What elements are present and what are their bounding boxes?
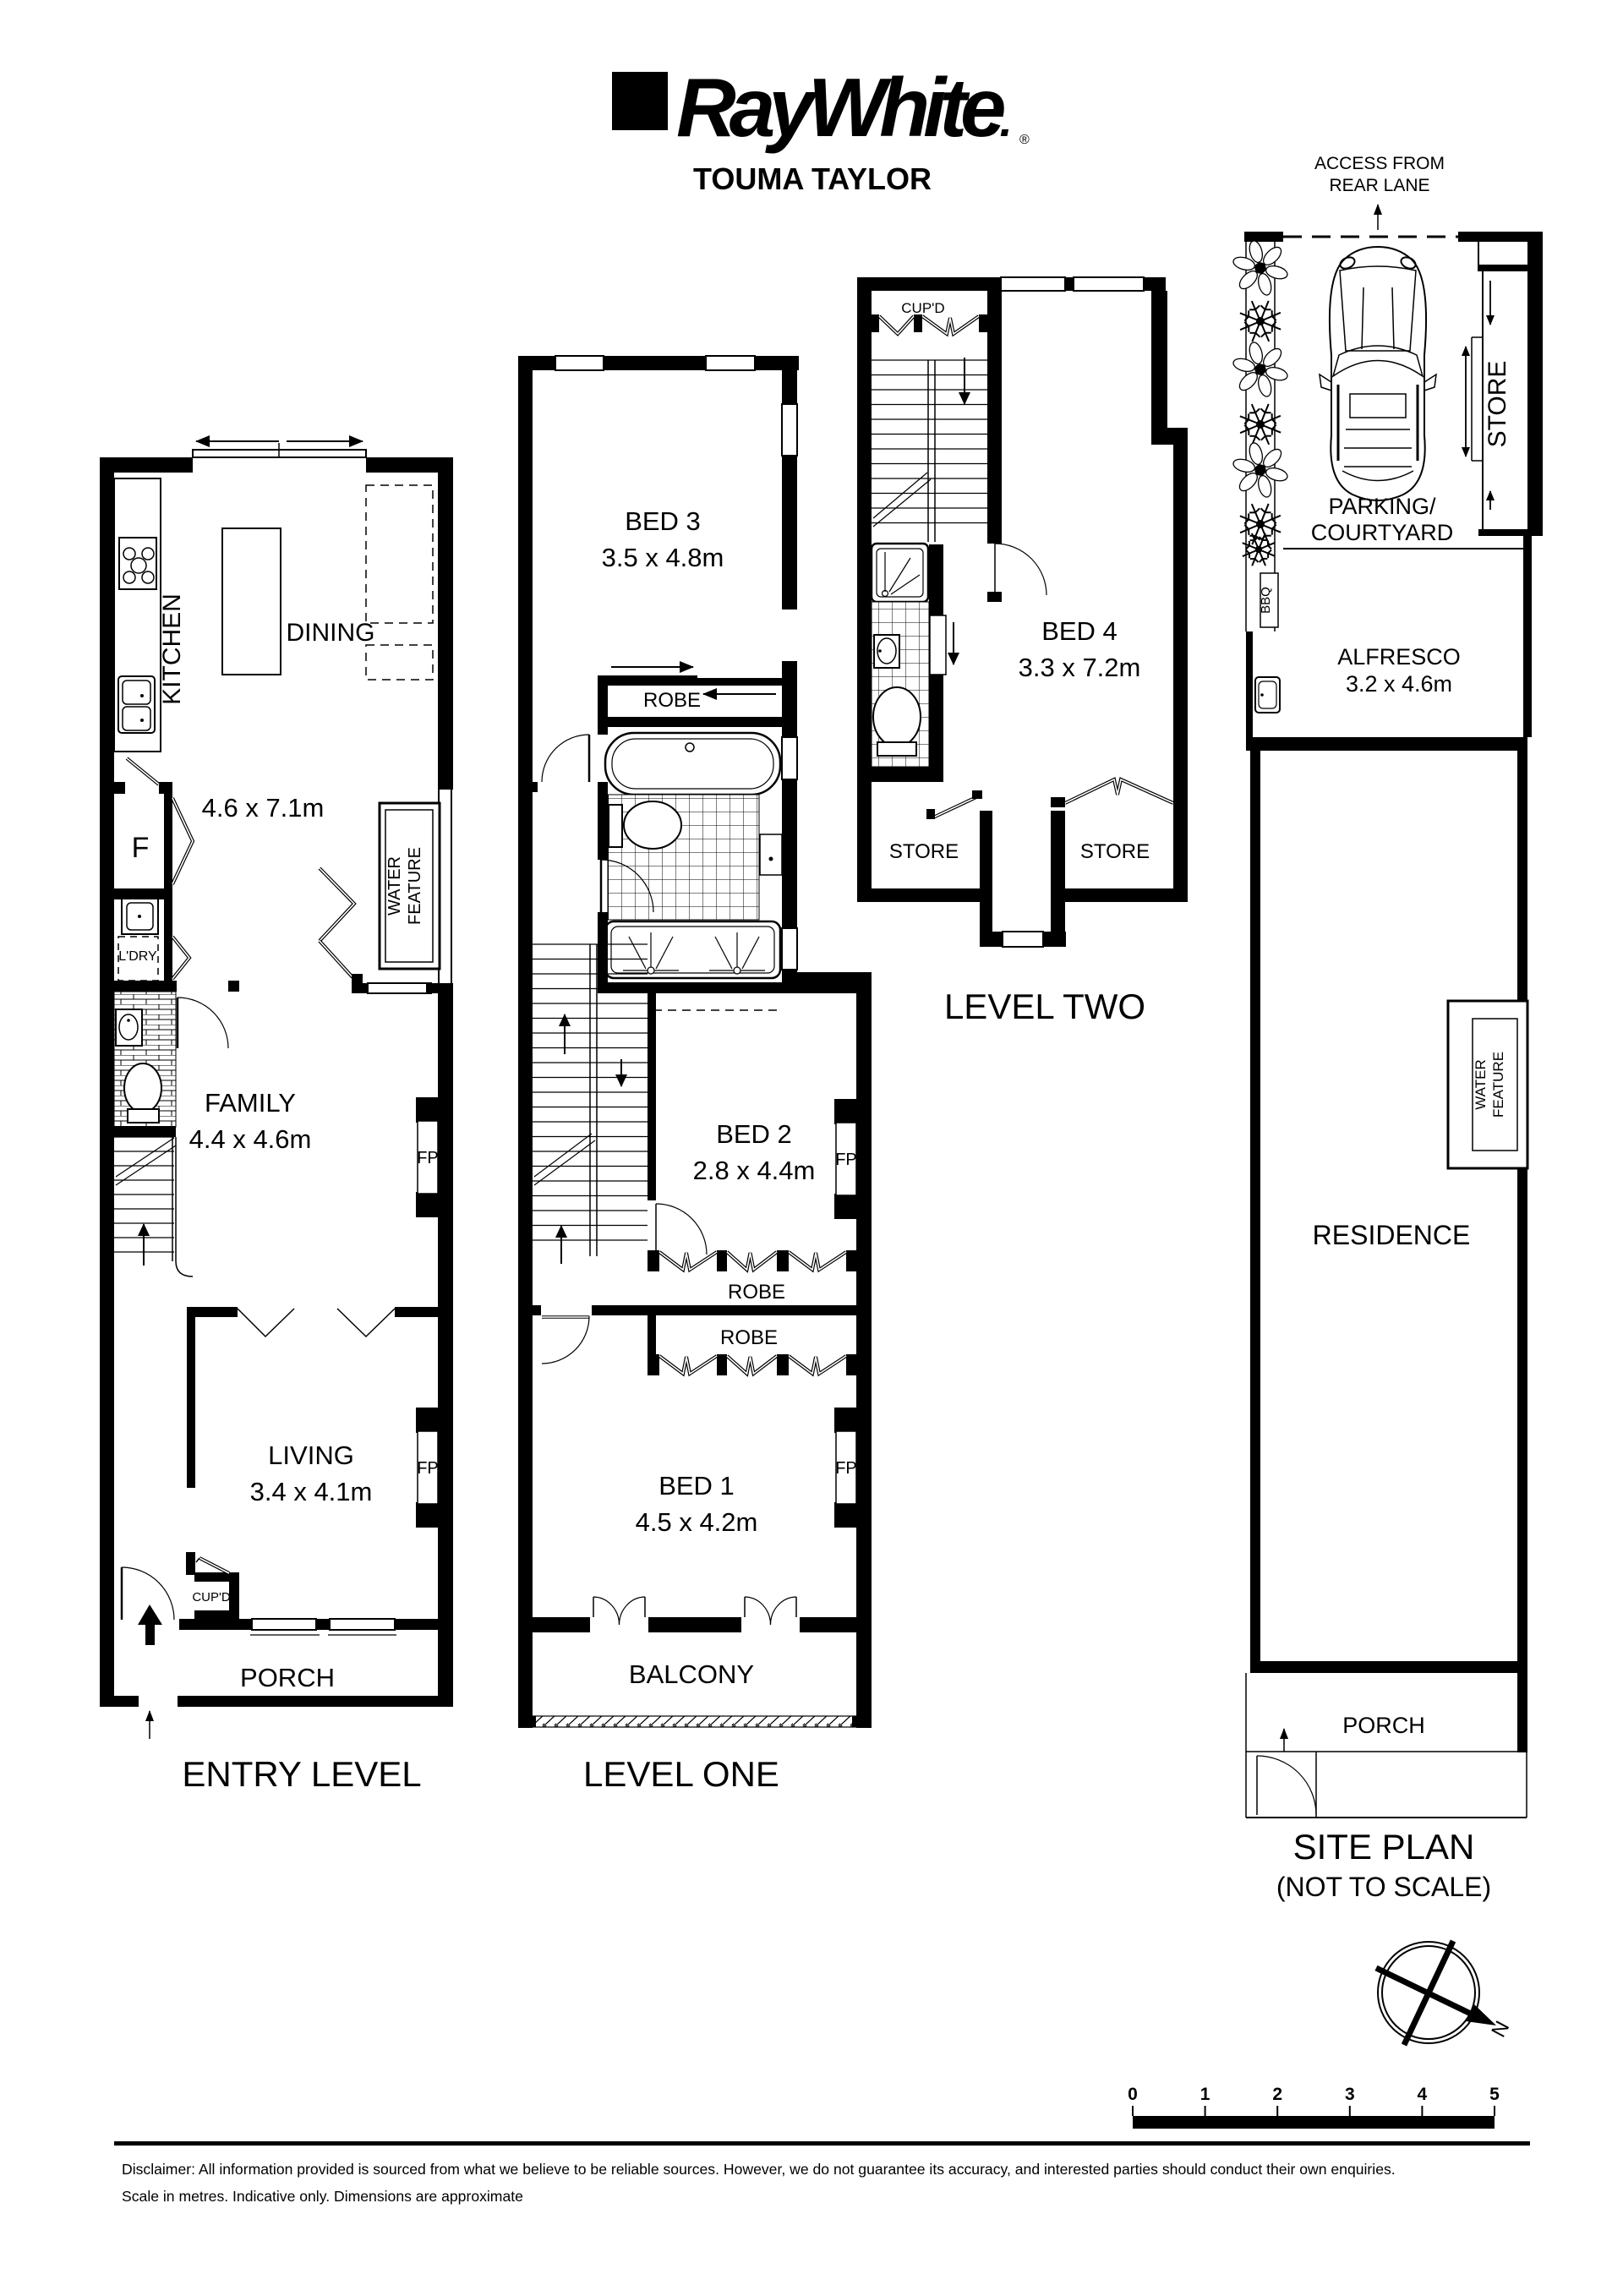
svg-text:RESIDENCE: RESIDENCE xyxy=(1313,1220,1471,1250)
svg-text:STORE: STORE xyxy=(889,840,959,863)
svg-text:FP: FP xyxy=(417,1459,439,1478)
svg-text:(NOT TO SCALE): (NOT TO SCALE) xyxy=(1276,1872,1491,1902)
svg-text:REAR LANE: REAR LANE xyxy=(1329,176,1429,195)
svg-text:FEATURE: FEATURE xyxy=(1490,1052,1506,1118)
svg-text:LEVEL TWO: LEVEL TWO xyxy=(944,987,1145,1026)
svg-text:2.8 x 4.4m: 2.8 x 4.4m xyxy=(693,1156,816,1185)
svg-text:FEATURE: FEATURE xyxy=(406,847,424,925)
svg-text:PARKING/: PARKING/ xyxy=(1328,494,1436,519)
svg-text:Scale in metres. Indicative on: Scale in metres. Indicative only. Dimens… xyxy=(122,2188,523,2205)
svg-text:BED 2: BED 2 xyxy=(716,1119,792,1149)
svg-text:3.5 x 4.8m: 3.5 x 4.8m xyxy=(602,543,724,572)
svg-text:PORCH: PORCH xyxy=(1342,1713,1425,1738)
svg-text:ALFRESCO: ALFRESCO xyxy=(1337,644,1461,670)
svg-text:LEVEL ONE: LEVEL ONE xyxy=(583,1754,779,1794)
svg-text:ACCESS FROM: ACCESS FROM xyxy=(1314,154,1445,173)
svg-text:4: 4 xyxy=(1418,2085,1428,2104)
svg-text:KITCHEN: KITCHEN xyxy=(158,593,186,705)
svg-text:0: 0 xyxy=(1128,2085,1138,2104)
svg-text:BBQ: BBQ xyxy=(1259,587,1273,614)
svg-text:3.4 x 4.1m: 3.4 x 4.1m xyxy=(250,1477,373,1506)
svg-text:ROBE: ROBE xyxy=(643,689,701,712)
svg-text:5: 5 xyxy=(1489,2085,1500,2104)
svg-text:CUP'D: CUP'D xyxy=(192,1590,231,1604)
svg-text:BED 4: BED 4 xyxy=(1041,616,1118,646)
svg-text:2: 2 xyxy=(1272,2085,1282,2104)
svg-text:ROBE: ROBE xyxy=(728,1281,785,1304)
svg-text:STORE: STORE xyxy=(1484,361,1511,448)
svg-text:TOUMA TAYLOR: TOUMA TAYLOR xyxy=(693,161,932,196)
svg-text:FAMILY: FAMILY xyxy=(205,1088,296,1118)
svg-text:1: 1 xyxy=(1200,2085,1210,2104)
svg-text:WATER: WATER xyxy=(385,856,404,916)
svg-text:WATER: WATER xyxy=(1473,1059,1489,1110)
svg-text:RayWhite.: RayWhite. xyxy=(676,61,1009,154)
svg-text:3: 3 xyxy=(1345,2085,1355,2104)
svg-text:COURTYARD: COURTYARD xyxy=(1311,520,1454,545)
svg-text:L'DRY: L'DRY xyxy=(118,949,157,964)
svg-text:BED 1: BED 1 xyxy=(658,1471,735,1501)
svg-text:FP: FP xyxy=(835,1459,857,1478)
svg-text:SITE PLAN: SITE PLAN xyxy=(1293,1827,1475,1867)
svg-text:ENTRY LEVEL: ENTRY LEVEL xyxy=(182,1754,421,1794)
svg-text:LIVING: LIVING xyxy=(268,1440,354,1470)
svg-text:BALCONY: BALCONY xyxy=(629,1659,754,1689)
svg-text:PORCH: PORCH xyxy=(240,1663,335,1692)
svg-text:4.4 x 4.6m: 4.4 x 4.6m xyxy=(189,1124,312,1154)
svg-text:®: ® xyxy=(1019,133,1030,147)
svg-text:Disclaimer: All information pr: Disclaimer: All information provided is … xyxy=(122,2161,1396,2178)
svg-text:ROBE: ROBE xyxy=(720,1326,778,1349)
svg-text:FP: FP xyxy=(417,1149,439,1167)
svg-text:3.3 x 7.2m: 3.3 x 7.2m xyxy=(1019,653,1141,682)
svg-text:DINING: DINING xyxy=(287,619,375,647)
svg-text:FP: FP xyxy=(835,1151,857,1169)
svg-text:3.2 x 4.6m: 3.2 x 4.6m xyxy=(1346,671,1452,697)
svg-text:4.5 x 4.2m: 4.5 x 4.2m xyxy=(636,1507,758,1537)
svg-text:F: F xyxy=(132,832,150,864)
svg-text:BED 3: BED 3 xyxy=(625,506,701,536)
svg-text:STORE: STORE xyxy=(1080,840,1150,863)
svg-text:CUP'D: CUP'D xyxy=(901,300,944,316)
svg-text:4.6 x 7.1m: 4.6 x 7.1m xyxy=(202,793,325,823)
